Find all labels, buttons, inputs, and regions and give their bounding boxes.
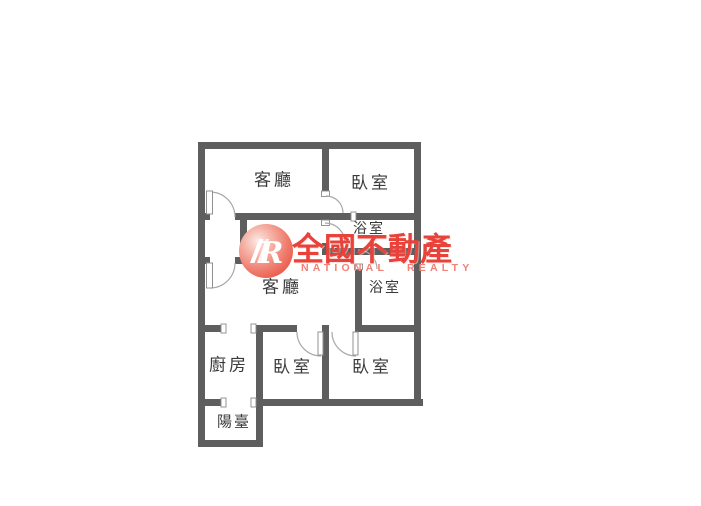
door-leaf-entry-lower <box>207 263 213 288</box>
door-sill <box>351 212 356 221</box>
floor-plan-drawing <box>0 0 701 506</box>
door-arc-bedroom-right <box>332 332 356 356</box>
door-sill <box>355 264 363 270</box>
wall-balcony-bottom <box>198 440 263 447</box>
wall-upper-bedroom-divider <box>322 149 329 192</box>
room-label-bedroom-upper-right: 臥室 <box>351 176 391 193</box>
wall-bath-lower-left <box>355 269 362 332</box>
wall-bath-upper-bottom <box>322 248 421 255</box>
wall-kitchen-right <box>256 325 263 447</box>
door-leaf-entry-upper <box>207 191 213 214</box>
room-label-bedroom-lower-middle: 臥室 <box>273 360 313 377</box>
wall-bedrooms-bottom <box>256 399 423 406</box>
door-sill <box>221 398 226 407</box>
door-arc-entry-lower <box>210 263 235 288</box>
wall-entry-box-bottom-right <box>235 257 247 264</box>
door-leaf-bedroom-middle <box>318 332 323 355</box>
room-label-living-room-upper: 客廳 <box>254 173 294 190</box>
wall-outer-top <box>198 142 421 149</box>
room-label-balcony: 陽臺 <box>217 415 251 430</box>
wall-mid-horizontal <box>235 213 414 220</box>
wall-kitchen-top-left <box>198 325 222 332</box>
door-arc-entry-upper <box>210 192 235 217</box>
wall-outer-right <box>414 142 421 406</box>
door-sill <box>251 398 256 407</box>
room-label-living-room-lower: 客廳 <box>262 280 302 297</box>
room-label-bedroom-lower-right: 臥室 <box>352 360 392 377</box>
door-leaf-bedroom-right <box>353 332 358 355</box>
door-arc-bedroom-middle <box>297 332 321 356</box>
wall-entry-box-right <box>240 220 247 257</box>
door-arc-bath-upper <box>325 223 345 243</box>
door-sill <box>251 324 256 333</box>
wall-kitchen-balcony-divider <box>198 399 222 406</box>
floor-plan-canvas: 客廳 臥室 浴室 浴室 客廳 廚房 臥室 臥室 陽臺 R 全國不動產 NATIO… <box>0 0 701 506</box>
wall-bath-lower-bottom <box>356 325 414 332</box>
room-label-bathroom-upper: 浴室 <box>353 222 385 236</box>
door-arc-bedroom-upper <box>326 196 343 213</box>
door-sill <box>221 324 226 333</box>
room-label-bathroom-lower: 浴室 <box>369 281 401 295</box>
room-label-kitchen: 廚房 <box>209 358 249 375</box>
